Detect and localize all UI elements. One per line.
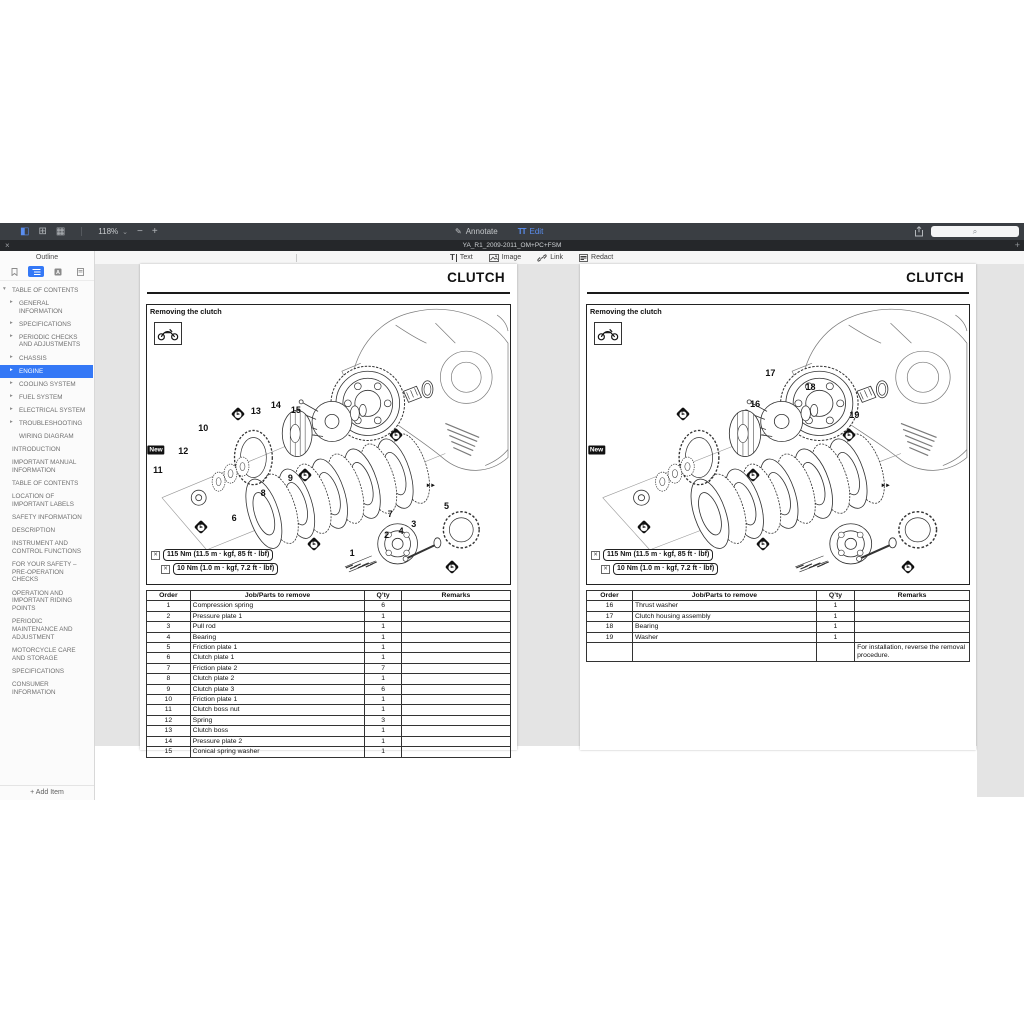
table-row: 19Washer1 — [587, 632, 970, 642]
job-cell: Spring — [190, 715, 365, 725]
main-toolbar: ◧ ⊞ ▦ 118% ⌄ − + ✎ Annotate TT Edit ⌕ — [0, 223, 1024, 240]
order-cell: 16 — [587, 601, 633, 611]
parts-table: OrderJob/Parts to removeQ’tyRemarks16Thr… — [586, 590, 970, 662]
qty-cell: 1 — [365, 611, 401, 621]
document-canvas[interactable]: CLUTCH Removing the clutch — [95, 264, 1024, 797]
link-icon — [537, 254, 547, 262]
job-cell: Compression spring — [190, 601, 365, 611]
qty-cell: 1 — [816, 611, 854, 621]
job-cell: Friction plate 2 — [190, 663, 365, 673]
order-cell: 14 — [147, 736, 191, 746]
column-header: Remarks — [855, 591, 970, 601]
sidebar-item-label: CHASSIS — [19, 355, 47, 362]
column-header: Remarks — [401, 591, 510, 601]
sidebar-item-label: MOTORCYCLE CARE AND STORAGE — [12, 647, 76, 662]
clutch-exploded-diagram — [147, 305, 510, 584]
torque-value: 10 Nm (1.0 m · kgf, 7.2 ft · lbf) — [173, 563, 278, 575]
table-row: 17Clutch housing assembly1 — [587, 611, 970, 621]
remarks-cell — [401, 747, 510, 757]
annotations-tab[interactable]: A — [50, 266, 66, 277]
column-header: Job/Parts to remove — [190, 591, 365, 601]
remarks-cell — [401, 695, 510, 705]
sidebar-item-description[interactable]: DESCRIPTION — [0, 524, 93, 537]
order-cell: 8 — [147, 674, 191, 684]
table-row: 14Pressure plate 21 — [147, 736, 511, 746]
qty-cell: 6 — [365, 601, 401, 611]
qty-cell: 1 — [816, 601, 854, 611]
part-number-label: 11 — [153, 465, 163, 475]
diagram-art — [587, 305, 969, 584]
torque-spec: ✕ 115 Nm (11.5 m · kgf, 85 ft · lbf) — [591, 549, 713, 561]
toolbar-divider — [296, 254, 297, 262]
job-cell — [632, 643, 816, 662]
job-cell: Friction plate 1 — [190, 695, 365, 705]
pdf-page-right[interactable]: CLUTCH Removing the clutch — [580, 264, 976, 750]
order-cell: 7 — [147, 663, 191, 673]
order-cell: 1 — [147, 601, 191, 611]
sidebar-item-label: TABLE OF CONTENTS — [12, 480, 78, 487]
sidebar-item-label: IMPORTANT MANUAL INFORMATION — [12, 459, 76, 474]
table-row: 8Clutch plate 21 — [147, 674, 511, 684]
part-number-label: 9 — [288, 473, 293, 483]
sidebar-item-label: ENGINE — [19, 368, 43, 375]
sidebar-item-label: PERIODIC MAINTENANCE AND ADJUSTMENT — [12, 618, 73, 641]
order-cell: 15 — [147, 747, 191, 757]
job-cell: Conical spring washer — [190, 747, 365, 757]
qty-cell: 1 — [816, 622, 854, 632]
column-header: Q’ty — [816, 591, 854, 601]
job-cell: Clutch housing assembly — [632, 611, 816, 621]
add-item-button[interactable]: + Add Item — [0, 785, 94, 800]
column-header: Q’ty — [365, 591, 401, 601]
link-tool-label: Link — [550, 254, 563, 261]
section-heading: Removing the clutch — [150, 307, 222, 316]
torque-value: 115 Nm (11.5 m · kgf, 85 ft · lbf) — [163, 549, 273, 561]
qty-cell: 1 — [365, 726, 401, 736]
part-number-label: 17 — [765, 368, 775, 378]
remarks-cell — [401, 622, 510, 632]
table-header-row: OrderJob/Parts to removeQ’tyRemarks — [147, 591, 511, 601]
part-number-label: 18 — [805, 382, 815, 392]
column-header: Order — [587, 591, 633, 601]
order-cell: 17 — [587, 611, 633, 621]
sidebar-item-label: FOR YOUR SAFETY – PRE-OPERATION CHECKS — [12, 561, 77, 584]
sidebar-item-label: FUEL SYSTEM — [19, 394, 63, 401]
bookmarks-tab[interactable] — [6, 266, 22, 277]
part-number-label: 14 — [271, 400, 281, 410]
order-cell: 11 — [147, 705, 191, 715]
sidebar-item-table-of-contents[interactable]: ▾TABLE OF CONTENTS — [0, 284, 93, 297]
remarks-cell — [401, 611, 510, 621]
remarks-cell — [401, 653, 510, 663]
wrench-icon: ✕ — [161, 565, 170, 574]
remarks-cell — [401, 715, 510, 725]
title-rule — [147, 292, 510, 294]
page-title: CLUTCH — [906, 270, 964, 285]
order-cell: 2 — [147, 611, 191, 621]
page-title: CLUTCH — [447, 270, 505, 285]
sidebar-item-electrical-system[interactable]: ▸ELECTRICAL SYSTEM — [0, 404, 93, 417]
job-cell: Bearing — [190, 632, 365, 642]
part-number-label: 8 — [261, 488, 266, 498]
order-cell: 18 — [587, 622, 633, 632]
sidebar-item-label: SAFETY INFORMATION — [12, 514, 82, 521]
table-row: 5Friction plate 11 — [147, 643, 511, 653]
table-row: 4Bearing1 — [147, 632, 511, 642]
sidebar-item-instrument-and-control-functions[interactable]: INSTRUMENT AND CONTROL FUNCTIONS — [0, 537, 93, 558]
order-cell: 12 — [147, 715, 191, 725]
edit-mode-button[interactable]: TT Edit — [518, 227, 544, 236]
chevron-down-icon: ⌄ — [122, 228, 128, 236]
chevron-right-icon[interactable]: ▸ — [10, 299, 13, 306]
order-cell: 13 — [147, 726, 191, 736]
chevron-down-icon[interactable]: ▾ — [3, 286, 6, 293]
chevron-right-icon[interactable]: ▸ — [10, 393, 13, 400]
sidebar-item-specifications[interactable]: ▸SPECIFICATIONS — [0, 318, 93, 331]
qty-cell: 1 — [365, 653, 401, 663]
sidebar-item-periodic-checks-and-adjustments[interactable]: ▸PERIODIC CHECKS AND ADJUSTMENTS — [0, 331, 93, 352]
sidebar-item-fuel-system[interactable]: ▸FUEL SYSTEM — [0, 391, 93, 404]
sidebar-item-introduction[interactable]: INTRODUCTION — [0, 443, 93, 456]
outline-tree: ▾TABLE OF CONTENTS▸GENERAL INFORMATION▸S… — [0, 284, 93, 784]
search-icon: ⌕ — [973, 228, 977, 236]
edit-tt-icon: TT — [518, 227, 526, 236]
sidebar-item-operation-and-important-riding-points[interactable]: OPERATION AND IMPORTANT RIDING POINTS — [0, 587, 93, 616]
table-row: 9Clutch plate 36 — [147, 684, 511, 694]
torque-spec: ✕ 115 Nm (11.5 m · kgf, 85 ft · lbf) — [151, 549, 273, 561]
sidebar-item-motorcycle-care-and-storage[interactable]: MOTORCYCLE CARE AND STORAGE — [0, 644, 93, 665]
text-tool-button[interactable]: T Text — [450, 254, 473, 262]
annotate-mode-button[interactable]: ✎ Annotate — [455, 227, 498, 236]
table-row: 13Clutch boss1 — [147, 726, 511, 736]
chevron-right-icon[interactable]: ▸ — [10, 367, 13, 374]
remarks-cell — [855, 622, 970, 632]
section-heading: Removing the clutch — [590, 307, 662, 316]
pdf-page-left[interactable]: CLUTCH Removing the clutch — [140, 264, 517, 750]
remarks-cell — [401, 601, 510, 611]
qty-cell: 1 — [365, 643, 401, 653]
redact-tool-label: Redact — [591, 254, 613, 261]
part-number-label: 3 — [411, 519, 416, 529]
sidebar-item-label: TROUBLESHOOTING — [19, 420, 82, 427]
zoom-in-button[interactable]: + — [152, 227, 158, 237]
sidebar-item-for-your-safety-pre-operation-checks[interactable]: FOR YOUR SAFETY – PRE-OPERATION CHECKS — [0, 558, 93, 587]
search-input[interactable]: ⌕ — [931, 226, 1019, 237]
part-number-label: 7 — [388, 509, 393, 519]
sidebar-item-general-information[interactable]: ▸GENERAL INFORMATION — [0, 297, 93, 318]
sidebar-item-label: SPECIFICATIONS — [12, 668, 64, 675]
thumbnails-tab[interactable] — [72, 266, 88, 277]
zoom-level-value[interactable]: 118% — [98, 227, 118, 236]
part-number-label: 2 — [384, 530, 389, 540]
sidebar-item-label: GENERAL INFORMATION — [19, 300, 63, 315]
job-cell: Pull rod — [190, 622, 365, 632]
diagram-box: Removing the clutch — [146, 304, 511, 585]
parts-table: OrderJob/Parts to removeQ’tyRemarks1Comp… — [146, 590, 511, 758]
sidebar-item-label: DESCRIPTION — [12, 527, 55, 534]
fastener-arrow-marker: ►► — [426, 483, 435, 489]
wrench-icon: ✕ — [601, 565, 610, 574]
motorcycle-icon — [157, 326, 179, 341]
page-grid-icon[interactable]: ⊞ — [38, 227, 46, 237]
image-tool-label: Image — [502, 254, 521, 261]
table-row: 18Bearing1 — [587, 622, 970, 632]
chevron-right-icon[interactable]: ▸ — [10, 333, 13, 340]
order-cell: 4 — [147, 632, 191, 642]
chevron-right-icon[interactable]: ▸ — [10, 354, 13, 361]
job-cell: Washer — [632, 632, 816, 642]
part-number-label: 4 — [399, 526, 404, 536]
job-cell: Friction plate 1 — [190, 643, 365, 653]
text-tool-label: Text — [460, 254, 473, 261]
annotations-icon: A — [54, 268, 62, 276]
sidebar-item-label: SPECIFICATIONS — [19, 321, 71, 328]
table-row: 15Conical spring washer1 — [147, 747, 511, 757]
table-row: 11Clutch boss nut1 — [147, 705, 511, 715]
remarks-cell — [855, 611, 970, 621]
remarks-cell — [401, 705, 510, 715]
remarks-cell: For installation, reverse the removal pr… — [855, 643, 970, 662]
order-cell — [587, 643, 633, 662]
link-tool-button[interactable]: Link — [537, 254, 563, 262]
diagram-art — [147, 305, 510, 584]
qty-cell: 6 — [365, 684, 401, 694]
part-number-label: 16 — [750, 399, 760, 409]
part-number-label: 13 — [251, 406, 261, 416]
order-cell: 6 — [147, 653, 191, 663]
sidebar-item-label: COOLING SYSTEM — [19, 381, 76, 388]
qty-cell: 1 — [365, 705, 401, 715]
motorcycle-icon-box — [594, 322, 622, 345]
share-icon[interactable] — [914, 226, 924, 237]
table-row: 3Pull rod1 — [147, 622, 511, 632]
remarks-cell — [401, 643, 510, 653]
torque-value: 10 Nm (1.0 m · kgf, 7.2 ft · lbf) — [613, 563, 718, 575]
svg-text:A: A — [56, 270, 60, 276]
tab-bar: × YA_R1_2009-2011_OM+PC+FSM + — [0, 240, 1024, 251]
job-cell: Clutch boss — [190, 726, 365, 736]
document-tab-title[interactable]: YA_R1_2009-2011_OM+PC+FSM — [0, 242, 1024, 249]
table-row: 1Compression spring6 — [147, 601, 511, 611]
job-cell: Pressure plate 1 — [190, 611, 365, 621]
qty-cell: 1 — [365, 674, 401, 684]
sidebar-item-label: PERIODIC CHECKS AND ADJUSTMENTS — [19, 334, 80, 349]
sidebar-item-consumer-information[interactable]: CONSUMER INFORMATION — [0, 678, 93, 699]
outline-sidebar: Outline A ▾TABLE OF CONTENTS▸GENERAL INF… — [0, 251, 95, 800]
sidebar-item-label: TABLE OF CONTENTS — [12, 287, 78, 294]
bookmark-icon — [11, 268, 18, 276]
part-number-label: 10 — [198, 423, 208, 433]
table-row: 6Clutch plate 11 — [147, 653, 511, 663]
outline-list-icon — [32, 268, 41, 276]
sidebar-item-cooling-system[interactable]: ▸COOLING SYSTEM — [0, 378, 93, 391]
sidebar-item-troubleshooting[interactable]: ▸TROUBLESHOOTING — [0, 417, 93, 430]
chevron-right-icon[interactable]: ▸ — [10, 380, 13, 387]
sidebar-item-chassis[interactable]: ▸CHASSIS — [0, 352, 93, 365]
column-header: Job/Parts to remove — [632, 591, 816, 601]
part-number-label: 5 — [444, 501, 449, 511]
sidebar-item-important-manual-information[interactable]: IMPORTANT MANUAL INFORMATION — [0, 456, 93, 477]
table-row: 16Thrust washer1 — [587, 601, 970, 611]
image-tool-button[interactable]: Image — [489, 254, 521, 262]
job-cell: Thrust washer — [632, 601, 816, 611]
remarks-cell — [855, 601, 970, 611]
sidebar-item-safety-information[interactable]: SAFETY INFORMATION — [0, 511, 93, 524]
order-cell: 9 — [147, 684, 191, 694]
remarks-cell — [401, 632, 510, 642]
sidebar-item-location-of-important-labels[interactable]: LOCATION OF IMPORTANT LABELS — [0, 490, 93, 511]
column-header: Order — [147, 591, 191, 601]
table-row: 7Friction plate 27 — [147, 663, 511, 673]
order-cell: 3 — [147, 622, 191, 632]
job-cell: Clutch plate 1 — [190, 653, 365, 663]
fastener-arrow-marker: ►► — [881, 483, 890, 489]
reading-mode-icon[interactable]: ▦ — [56, 227, 65, 237]
remarks-cell — [401, 674, 510, 684]
sidebar-item-wiring-diagram[interactable]: WIRING DIAGRAM — [0, 430, 93, 443]
sidebar-item-engine[interactable]: ▸ENGINE — [0, 365, 93, 378]
zoom-control[interactable]: 118% ⌄ — [98, 227, 128, 236]
job-cell: Clutch plate 2 — [190, 674, 365, 684]
part-number-label: 15 — [291, 405, 301, 415]
sidebar-item-table-of-contents[interactable]: TABLE OF CONTENTS — [0, 477, 93, 490]
sidebar-item-label: INTRODUCTION — [12, 446, 60, 453]
part-number-label: 12 — [178, 446, 188, 456]
wrench-icon: ✕ — [151, 551, 160, 560]
part-number-label: 6 — [232, 513, 237, 523]
page-thumbnails-icon — [77, 268, 84, 276]
redact-tool-button[interactable]: Redact — [579, 254, 613, 262]
table-row: 12Spring3 — [147, 715, 511, 725]
qty-cell — [816, 643, 854, 662]
part-number-label: 19 — [849, 410, 859, 420]
redact-icon — [579, 254, 588, 262]
job-cell: Clutch boss nut — [190, 705, 365, 715]
job-cell: Pressure plate 2 — [190, 736, 365, 746]
order-cell: 5 — [147, 643, 191, 653]
order-cell: 10 — [147, 695, 191, 705]
edit-label: Edit — [530, 227, 544, 236]
table-row: 10Friction plate 11 — [147, 695, 511, 705]
sidebar-item-label: CONSUMER INFORMATION — [12, 681, 56, 696]
sidebar-toggle-icon[interactable]: ◧ — [20, 227, 29, 237]
table-row: 2Pressure plate 11 — [147, 611, 511, 621]
new-part-badge: New — [147, 446, 164, 455]
chevron-right-icon[interactable]: ▸ — [10, 406, 13, 413]
edit-tools-toolbar: T Text Image Link — [95, 251, 1024, 265]
sidebar-item-label: INSTRUMENT AND CONTROL FUNCTIONS — [12, 540, 81, 555]
remarks-cell — [855, 632, 970, 642]
table-header-row: OrderJob/Parts to removeQ’tyRemarks — [587, 591, 970, 601]
sidebar-item-periodic-maintenance-and-adjustment[interactable]: PERIODIC MAINTENANCE AND ADJUSTMENT — [0, 616, 93, 645]
qty-cell: 1 — [816, 632, 854, 642]
qty-cell: 1 — [365, 747, 401, 757]
sidebar-item-label: WIRING DIAGRAM — [19, 433, 74, 440]
part-number-label: 1 — [350, 548, 355, 558]
zoom-out-button[interactable]: − — [137, 227, 143, 237]
title-rule — [587, 292, 969, 294]
torque-spec: ✕ 10 Nm (1.0 m · kgf, 7.2 ft · lbf) — [161, 563, 278, 575]
text-tool-icon: T — [450, 254, 457, 262]
toolbar-divider — [81, 227, 82, 236]
annotate-label: Annotate — [466, 227, 498, 236]
sidebar-item-label: LOCATION OF IMPORTANT LABELS — [12, 493, 74, 508]
remarks-cell — [401, 726, 510, 736]
qty-cell: 1 — [365, 736, 401, 746]
clutch-exploded-diagram — [587, 305, 969, 584]
motorcycle-icon — [597, 326, 619, 341]
chevron-right-icon[interactable]: ▸ — [10, 320, 13, 327]
job-cell: Clutch plate 3 — [190, 684, 365, 694]
sidebar-item-label: OPERATION AND IMPORTANT RIDING POINTS — [12, 590, 72, 613]
order-cell: 19 — [587, 632, 633, 642]
diagram-box: Removing the clutch — [586, 304, 970, 585]
table-row: For installation, reverse the removal pr… — [587, 643, 970, 662]
remarks-cell — [401, 736, 510, 746]
sidebar-item-label: ELECTRICAL SYSTEM — [19, 407, 85, 414]
qty-cell: 3 — [365, 715, 401, 725]
torque-spec: ✕ 10 Nm (1.0 m · kgf, 7.2 ft · lbf) — [601, 563, 718, 575]
remarks-cell — [401, 663, 510, 673]
sidebar-title: Outline — [0, 251, 94, 265]
close-tab-icon[interactable]: × — [5, 242, 10, 250]
qty-cell: 1 — [365, 622, 401, 632]
job-cell: Bearing — [632, 622, 816, 632]
pencil-icon: ✎ — [455, 227, 462, 236]
add-tab-icon[interactable]: + — [1015, 241, 1020, 250]
image-icon — [489, 254, 499, 262]
remarks-cell — [401, 684, 510, 694]
torque-value: 115 Nm (11.5 m · kgf, 85 ft · lbf) — [603, 549, 713, 561]
chevron-right-icon[interactable]: ▸ — [10, 419, 13, 426]
new-part-badge: New — [588, 446, 605, 455]
sidebar-item-specifications[interactable]: SPECIFICATIONS — [0, 665, 93, 678]
qty-cell: 1 — [365, 632, 401, 642]
qty-cell: 1 — [365, 695, 401, 705]
outline-tab[interactable] — [28, 266, 44, 277]
wrench-icon: ✕ — [591, 551, 600, 560]
qty-cell: 7 — [365, 663, 401, 673]
motorcycle-icon-box — [154, 322, 182, 345]
